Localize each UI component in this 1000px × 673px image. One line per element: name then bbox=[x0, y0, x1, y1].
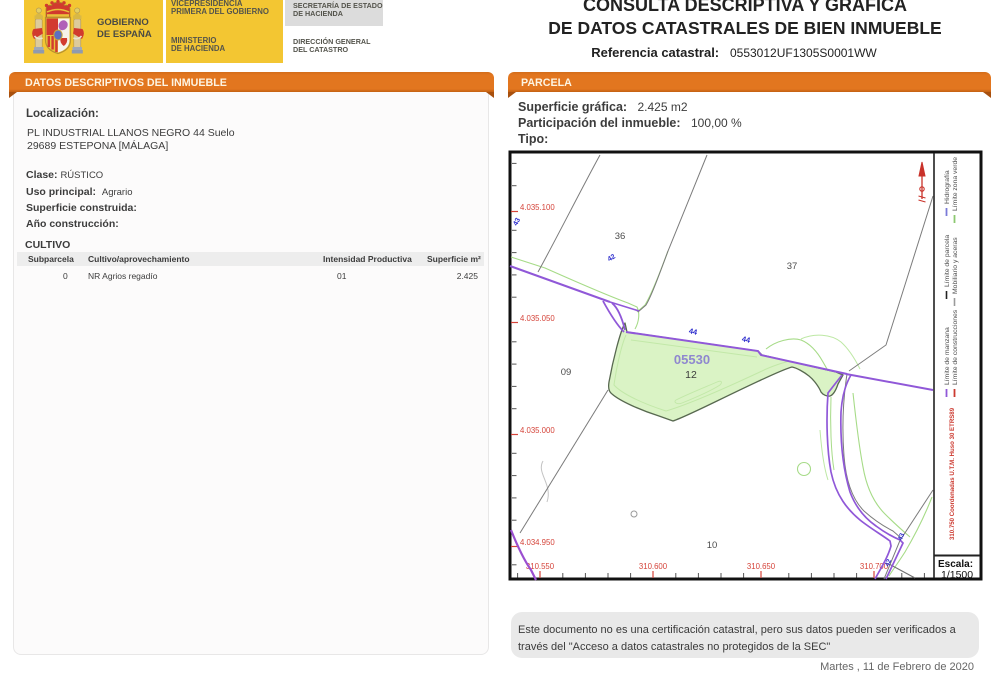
svg-text:09: 09 bbox=[561, 367, 572, 378]
svg-text:05530: 05530 bbox=[674, 352, 710, 367]
svg-text:Mobiliario y aceras: Mobiliario y aceras bbox=[952, 237, 959, 294]
svg-text:Límite de construcciones: Límite de construcciones bbox=[952, 309, 959, 385]
svg-text:310.600: 310.600 bbox=[639, 562, 668, 571]
svg-text:4.034.950: 4.034.950 bbox=[520, 538, 555, 547]
svg-text:12: 12 bbox=[685, 369, 697, 381]
svg-text:1/1500: 1/1500 bbox=[941, 569, 973, 581]
svg-text:4.035.000: 4.035.000 bbox=[520, 426, 555, 435]
svg-text:310.650: 310.650 bbox=[747, 562, 776, 571]
svg-text:Hidrografía: Hidrografía bbox=[944, 170, 951, 204]
svg-text:Límite de manzana: Límite de manzana bbox=[944, 327, 951, 385]
svg-text:36: 36 bbox=[615, 231, 626, 242]
svg-text:4.035.100: 4.035.100 bbox=[520, 203, 555, 212]
svg-text:Límite zona verde: Límite zona verde bbox=[952, 157, 959, 211]
svg-text:10: 10 bbox=[707, 540, 718, 551]
svg-text:37: 37 bbox=[787, 261, 798, 272]
svg-text:310.750 Coordenadas U.T.M. Hus: 310.750 Coordenadas U.T.M. Huso 30 ETRS8… bbox=[949, 407, 956, 540]
svg-text:4.035.050: 4.035.050 bbox=[520, 314, 555, 323]
svg-text:Límite de parcela: Límite de parcela bbox=[944, 235, 951, 287]
